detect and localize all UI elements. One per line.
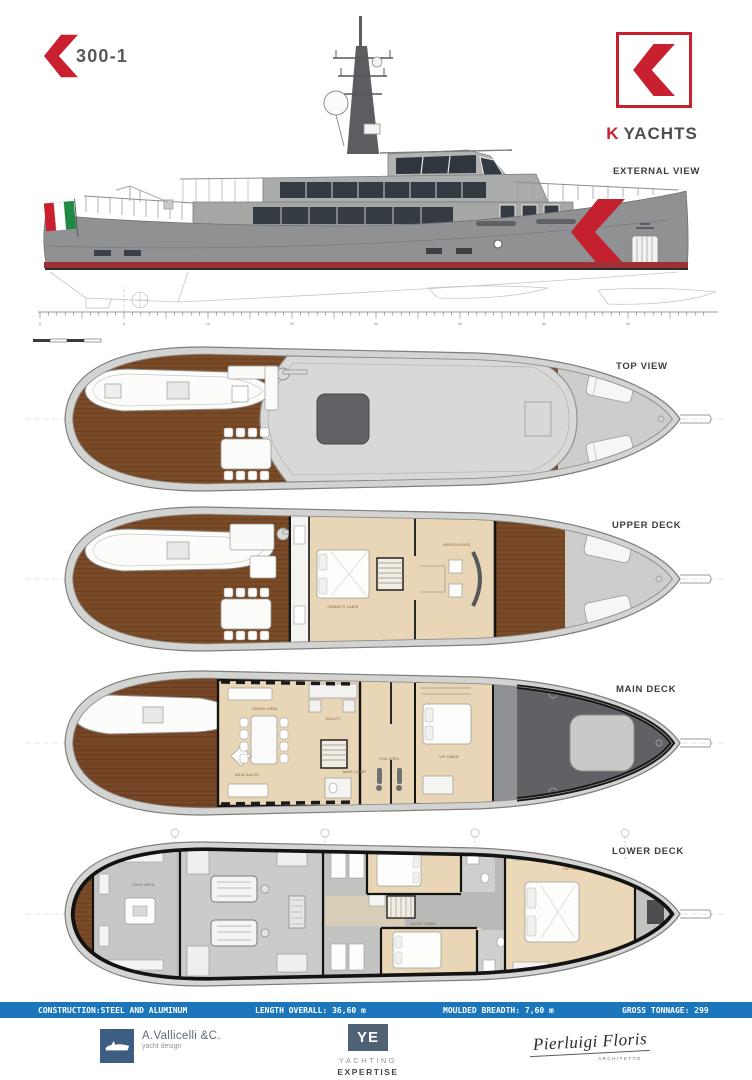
- external-view-drawing: 00102030405060: [28, 6, 728, 328]
- svg-text:0: 0: [123, 321, 126, 326]
- gym-area-label: GYM AREA: [379, 757, 400, 761]
- vip-cabin-label: VIP CABIN: [439, 755, 459, 759]
- spec-length: LENGTH OVERALL: 36,60 m: [255, 1006, 366, 1015]
- spec-bar: CONSTRUCTION:STEEL AND ALUMINUM LENGTH O…: [0, 1002, 752, 1018]
- galley-label: GALLEY: [326, 717, 341, 721]
- crew-area-label: CREW AREA: [131, 883, 154, 887]
- upper-deck-drawing: OWNER'S CABIN WHEELHOUSE: [25, 496, 725, 662]
- lower-deck-drawing: CREW AREA GUEST CABIN GUEST CABIN VIP CA…: [25, 826, 725, 996]
- svg-text:60: 60: [626, 321, 631, 326]
- ye-expertise: EXPERTISE: [330, 1067, 406, 1077]
- svg-text:30: 30: [374, 321, 379, 326]
- svg-text:40: 40: [458, 321, 463, 326]
- owner-cabin-label: OWNER'S CABIN: [327, 605, 358, 609]
- spec-construction: CONSTRUCTION:STEEL AND ALUMINUM: [38, 1006, 187, 1015]
- ye-monogram: YE: [348, 1024, 388, 1051]
- mast: [324, 16, 393, 154]
- top-view-drawing: [25, 336, 725, 502]
- superstructure: [180, 150, 573, 225]
- main-lobby-label: MAIN LOBBY: [343, 770, 367, 774]
- vallicelli-name: A.Vallicelli &C.: [142, 1030, 221, 1042]
- vallicelli-subtitle: yacht design: [142, 1043, 221, 1050]
- svg-text:20: 20: [290, 321, 295, 326]
- svg-text:10: 10: [206, 321, 211, 326]
- spec-tonnage: GROSS TONNAGE: 299: [622, 1006, 709, 1015]
- dining-area-label: DINING AREA: [252, 707, 278, 711]
- vallicelli-boat-icon: [100, 1029, 134, 1063]
- brochure-page: 300-1 KYACHTS EXTERNAL VIEW TOP VIEW UPP…: [0, 0, 752, 1080]
- svg-text:50: 50: [542, 321, 547, 326]
- svg-text:0: 0: [39, 321, 42, 326]
- architect-signature: Pierluigi Floris ARCHITETTO: [500, 1032, 680, 1061]
- signature-title: ARCHITETTO: [500, 1056, 680, 1061]
- main-salon-label: MAIN SALON: [235, 773, 259, 777]
- underwater-profile: [50, 272, 716, 308]
- yachting-expertise-logo: YE YACHTING EXPERTISE: [330, 1024, 406, 1077]
- main-deck-drawing: MAIN SALON DINING AREA GALLEY MAIN LOBBY…: [25, 660, 725, 826]
- vallicelli-logo: A.Vallicelli &C. yacht design: [100, 1029, 221, 1063]
- spec-breadth: MOULDED BREADTH: 7,60 m: [443, 1006, 554, 1015]
- ye-yachting: YACHTING: [330, 1056, 406, 1065]
- wheelhouse-label: WHEELHOUSE: [443, 543, 471, 547]
- guest-cabin-label-2: GUEST CABIN: [410, 922, 436, 926]
- mini-scale-bar: [33, 339, 101, 342]
